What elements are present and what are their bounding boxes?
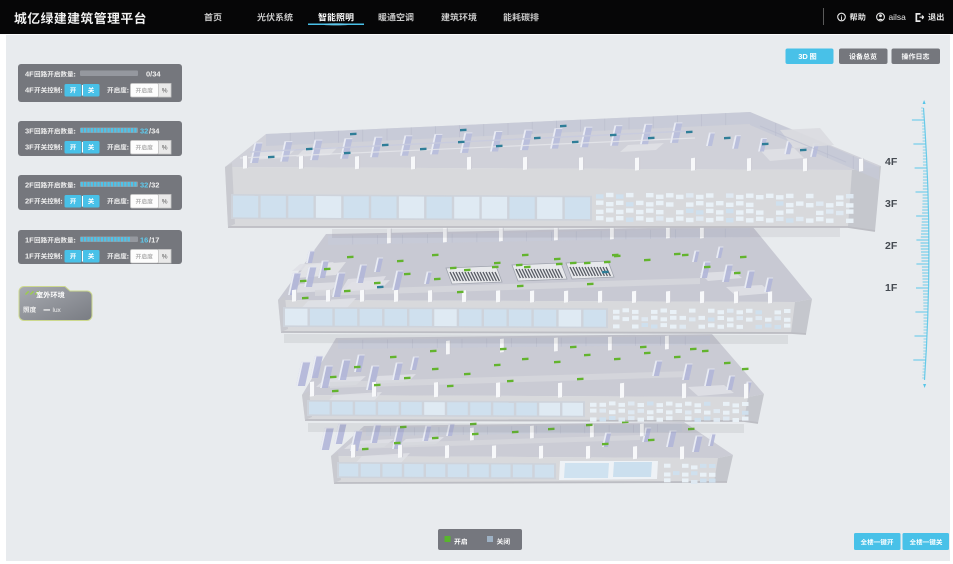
- svg-text:1F: 1F: [25, 252, 34, 261]
- svg-text:2F: 2F: [25, 181, 34, 190]
- svg-text:i: i: [841, 15, 843, 22]
- svg-text:%: %: [162, 88, 168, 95]
- svg-text:%: %: [162, 199, 168, 206]
- svg-text:2F: 2F: [885, 240, 898, 252]
- svg-text:32: 32: [140, 127, 148, 136]
- svg-text:1F: 1F: [885, 282, 898, 294]
- svg-text:1F: 1F: [25, 236, 34, 245]
- svg-text:2F: 2F: [25, 197, 34, 206]
- svg-text:/17: /17: [149, 236, 159, 245]
- svg-text:0/34: 0/34: [146, 70, 161, 79]
- svg-text:lux: lux: [53, 307, 62, 314]
- svg-text:4F: 4F: [885, 156, 898, 168]
- svg-text:%: %: [162, 254, 168, 261]
- svg-text:/32: /32: [149, 181, 159, 190]
- svg-text:3F: 3F: [25, 127, 34, 136]
- svg-text:3F: 3F: [25, 143, 34, 152]
- svg-text:%: %: [162, 145, 168, 152]
- svg-text:3F: 3F: [885, 198, 898, 210]
- svg-text:3D: 3D: [798, 52, 808, 61]
- svg-text:16: 16: [140, 236, 148, 245]
- svg-text:/34: /34: [149, 127, 160, 136]
- svg-text:4F: 4F: [25, 86, 34, 95]
- svg-text:4F: 4F: [25, 70, 34, 79]
- svg-text:32: 32: [140, 181, 148, 190]
- svg-text:ailsa: ailsa: [889, 12, 907, 22]
